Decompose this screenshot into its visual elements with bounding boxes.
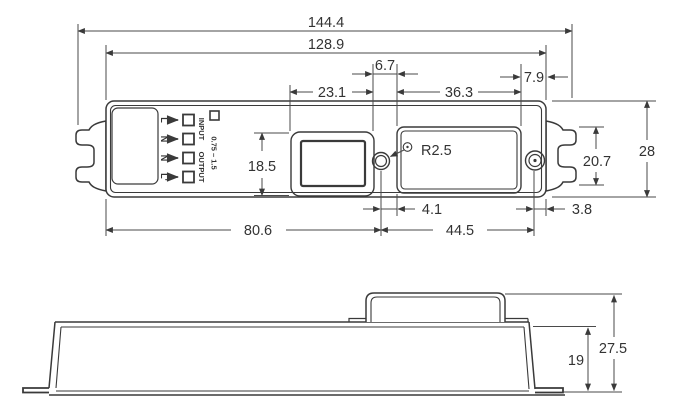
dimension-drawing: L N N L' INPUT OUTPUT 0.75 – 1.5 xyxy=(0,0,680,418)
dim-panel-width: 36.3 xyxy=(397,85,521,101)
svg-text:20.7: 20.7 xyxy=(583,154,611,170)
svg-text:3.8: 3.8 xyxy=(572,202,592,218)
left-mounting-tab xyxy=(23,388,49,393)
svg-text:19: 19 xyxy=(568,353,584,369)
screw-hole-center xyxy=(533,159,536,162)
svg-text:6.7: 6.7 xyxy=(375,58,395,74)
svg-text:7.9: 7.9 xyxy=(524,70,544,86)
wire-gauge-label: 0.75 – 1.5 xyxy=(210,136,219,169)
side-view: 19 27.5 xyxy=(23,293,627,395)
svg-text:80.6: 80.6 xyxy=(244,223,272,239)
svg-text:144.4: 144.4 xyxy=(308,15,344,31)
svg-text:23.1: 23.1 xyxy=(318,85,346,101)
dim-side-overall-height: 27.5 xyxy=(599,296,627,391)
svg-text:36.3: 36.3 xyxy=(445,85,473,101)
right-mounting-tab xyxy=(535,388,563,393)
right-cable-clip xyxy=(546,121,576,191)
left-cable-clip xyxy=(76,121,106,191)
svg-text:44.5: 44.5 xyxy=(446,223,474,239)
terminal-letter: N xyxy=(159,136,169,143)
dim-side-body-height: 19 xyxy=(568,328,588,391)
dim-overall-length: 144.4 xyxy=(78,15,572,31)
svg-text:R2.5: R2.5 xyxy=(421,143,452,159)
enclosure-outline xyxy=(106,101,546,197)
drawing-canvas: L N N L' INPUT OUTPUT 0.75 – 1.5 xyxy=(0,0,680,418)
dim-screw-to-edge: 3.8 xyxy=(516,202,592,218)
dim-left-to-hole: 80.6 xyxy=(106,223,381,239)
dim-panel-to-edge: 7.9 xyxy=(500,70,568,86)
dim-opening-width: 23.1 xyxy=(290,85,373,101)
dim-opening-to-panel-gap: 6.7 xyxy=(352,58,418,74)
dim-hole-to-screw: 44.5 xyxy=(381,223,534,239)
side-body-outline xyxy=(49,322,565,395)
dim-clip-width: 20.7 xyxy=(583,127,611,185)
svg-text:4.1: 4.1 xyxy=(422,202,442,218)
svg-text:27.5: 27.5 xyxy=(599,341,627,357)
terminal-letter: L xyxy=(159,117,169,123)
top-view: L N N L' INPUT OUTPUT 0.75 – 1.5 xyxy=(76,15,656,239)
dim-hole-to-panel: 4.1 xyxy=(363,202,442,218)
dim-body-width: 28 xyxy=(639,101,655,197)
datum-dot-icon xyxy=(406,146,408,148)
svg-text:18.5: 18.5 xyxy=(248,159,276,175)
terminal-letter: L' xyxy=(159,173,169,181)
output-label: OUTPUT xyxy=(197,152,206,183)
terminal-letter: N xyxy=(159,155,169,162)
side-body-inner-edge xyxy=(56,327,529,391)
dim-body-length: 128.9 xyxy=(106,37,546,53)
input-label: INPUT xyxy=(197,118,206,141)
svg-text:128.9: 128.9 xyxy=(308,37,344,53)
svg-text:28: 28 xyxy=(639,144,655,160)
